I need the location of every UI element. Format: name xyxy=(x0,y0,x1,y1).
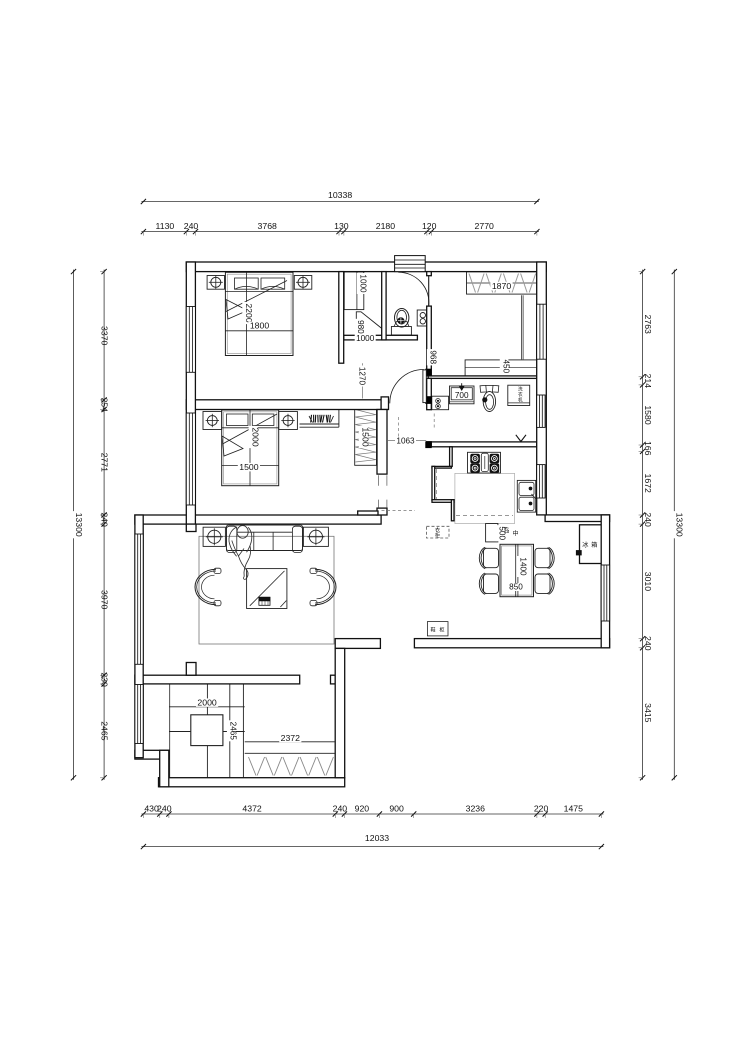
svg-text:1800: 1800 xyxy=(250,321,269,331)
svg-text:1400: 1400 xyxy=(519,557,528,576)
svg-text:240: 240 xyxy=(157,803,172,813)
svg-text:柜: 柜 xyxy=(439,627,444,634)
svg-text:2180: 2180 xyxy=(376,221,395,231)
svg-text:214: 214 xyxy=(643,374,653,389)
svg-text:230: 230 xyxy=(100,672,110,687)
svg-text:240: 240 xyxy=(643,512,653,527)
svg-text:冰: 冰 xyxy=(582,541,589,549)
svg-text:13300: 13300 xyxy=(74,513,84,537)
svg-text:1130: 1130 xyxy=(156,221,175,231)
svg-text:254: 254 xyxy=(100,397,110,412)
svg-text:980: 980 xyxy=(356,320,365,334)
svg-text:3970: 3970 xyxy=(100,590,110,609)
svg-text:箱: 箱 xyxy=(591,541,597,549)
svg-text:2771: 2771 xyxy=(100,453,110,472)
svg-text:3236: 3236 xyxy=(466,803,485,813)
svg-text:机: 机 xyxy=(518,397,523,404)
svg-text:850: 850 xyxy=(509,583,523,592)
svg-text:4372: 4372 xyxy=(242,803,261,813)
svg-text:2763: 2763 xyxy=(643,315,653,334)
svg-text:1500: 1500 xyxy=(239,462,258,472)
svg-text:1063: 1063 xyxy=(396,436,415,445)
svg-text:2770: 2770 xyxy=(475,221,494,231)
svg-text:2000: 2000 xyxy=(251,427,261,446)
svg-text:1580: 1580 xyxy=(643,405,653,424)
svg-text:130: 130 xyxy=(334,221,349,231)
svg-text:968: 968 xyxy=(429,350,438,364)
svg-text:中: 中 xyxy=(512,530,518,538)
svg-text:240: 240 xyxy=(643,636,653,651)
svg-text:920: 920 xyxy=(355,803,370,813)
svg-text:1500: 1500 xyxy=(361,427,371,446)
svg-text:3370: 3370 xyxy=(100,326,110,345)
svg-text:1000: 1000 xyxy=(356,334,375,343)
svg-text:13300: 13300 xyxy=(675,513,685,537)
svg-text:2372: 2372 xyxy=(281,733,300,743)
svg-text:1270: 1270 xyxy=(357,367,366,386)
svg-text:柜: 柜 xyxy=(435,532,440,539)
svg-text:1870: 1870 xyxy=(492,281,511,291)
svg-text:10338: 10338 xyxy=(328,190,352,200)
svg-text:2000: 2000 xyxy=(197,697,216,707)
svg-text:3415: 3415 xyxy=(643,703,653,722)
svg-text:1672: 1672 xyxy=(643,474,653,493)
svg-text:240: 240 xyxy=(333,803,348,813)
svg-text:166: 166 xyxy=(643,441,653,456)
svg-text:1475: 1475 xyxy=(564,803,583,813)
svg-text:鞋: 鞋 xyxy=(430,627,435,634)
svg-text:240: 240 xyxy=(100,512,110,527)
svg-text:900: 900 xyxy=(389,803,404,813)
svg-text:3010: 3010 xyxy=(643,572,653,591)
svg-text:2465: 2465 xyxy=(100,721,110,740)
svg-text:120: 120 xyxy=(422,221,437,231)
svg-text:3768: 3768 xyxy=(258,221,277,231)
svg-text:2465: 2465 xyxy=(229,722,238,741)
svg-text:700: 700 xyxy=(455,391,469,400)
svg-text:1000: 1000 xyxy=(359,274,368,293)
svg-text:岛: 岛 xyxy=(503,527,509,535)
svg-text:220: 220 xyxy=(534,803,549,813)
svg-text:450: 450 xyxy=(502,359,511,373)
svg-text:240: 240 xyxy=(184,221,199,231)
svg-text:12033: 12033 xyxy=(365,833,389,843)
